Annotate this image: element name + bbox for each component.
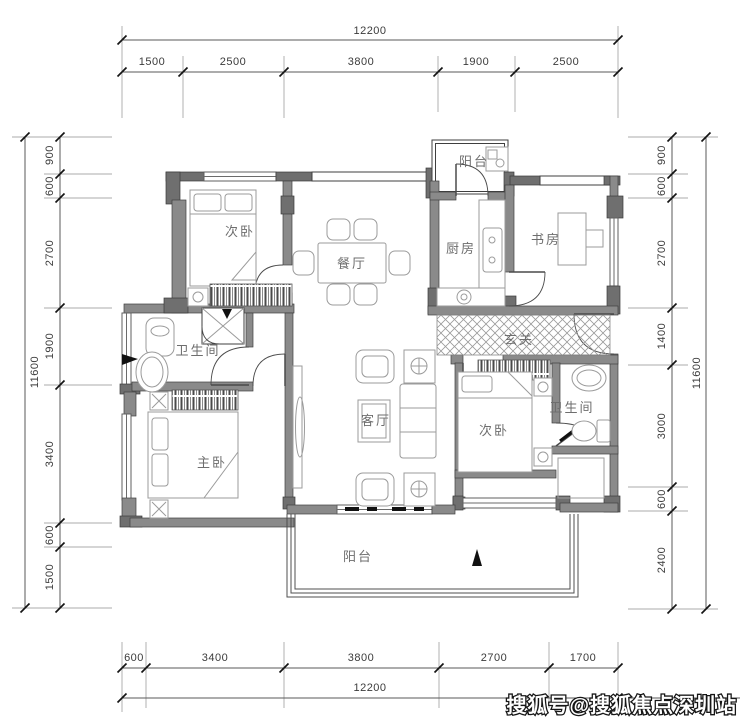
room-label-kitchen: 厨房 <box>446 241 476 256</box>
dim-right-seg-4: 3000 <box>656 413 668 439</box>
dim-top-seg-1: 2500 <box>220 56 246 68</box>
room-label-bedroom-top-left: 次卧 <box>225 224 255 239</box>
bath-left-fixtures <box>136 318 174 392</box>
study-chair <box>586 230 603 247</box>
dim-bottom-seg-1: 3400 <box>202 652 228 664</box>
dim-right-seg-6: 2400 <box>656 547 668 573</box>
armchair <box>356 350 394 383</box>
nightstand <box>534 378 552 396</box>
nightstand <box>534 448 552 466</box>
dim-left-seg-2: 2700 <box>44 240 56 266</box>
dim-top-seg-3: 1900 <box>463 56 489 68</box>
dim-right-seg-1: 600 <box>656 176 668 196</box>
dim-bottom-seg-3: 2700 <box>481 652 507 664</box>
balcony-rail <box>287 514 578 597</box>
dim-right-seg-0: 900 <box>656 145 668 165</box>
dim-top-seg-2: 3800 <box>348 56 374 68</box>
dimension-left: 11600 900 600 2700 1900 3400 600 1500 <box>21 133 65 613</box>
floorplan-page: 12200 1500 2500 3800 1900 2500 11600 900… <box>0 0 740 719</box>
dim-bottom-seg-0: 600 <box>124 652 144 664</box>
dim-left-seg-6: 1500 <box>44 564 56 590</box>
dim-left-seg-0: 900 <box>44 145 56 165</box>
dim-left-seg-5: 600 <box>44 525 56 545</box>
dim-top-seg-0: 1500 <box>139 56 165 68</box>
shower <box>202 308 244 344</box>
dim-bottom-seg-2: 3800 <box>348 652 374 664</box>
dim-bottom-seg-4: 1700 <box>570 652 596 664</box>
dim-bottom-total: 12200 <box>353 682 386 694</box>
dim-left-seg-3: 1900 <box>44 333 56 359</box>
armchair <box>356 473 394 506</box>
dim-left-seg-4: 3400 <box>44 441 56 467</box>
room-label-balcony-top: 阳台 <box>459 154 489 169</box>
tv-cabinet <box>293 366 305 488</box>
room-label-entry: 玄关 <box>504 332 534 347</box>
room-label-living: 客厅 <box>361 413 391 428</box>
dim-left-seg-1: 600 <box>44 176 56 196</box>
room-label-master-bedroom: 主卧 <box>197 455 227 470</box>
dim-right-seg-5: 600 <box>656 489 668 509</box>
dim-top-total: 12200 <box>353 25 386 37</box>
dim-right-seg-3: 1400 <box>656 323 668 349</box>
side-table <box>404 350 435 383</box>
dim-right-seg-2: 2700 <box>656 240 668 266</box>
bed-right <box>458 372 532 472</box>
dim-right-total: 11600 <box>691 357 703 389</box>
wardrobe-top-left <box>210 284 292 306</box>
nightstand <box>188 288 208 306</box>
room-label-bathroom-right: 卫生间 <box>549 400 594 415</box>
side-table <box>404 473 435 506</box>
room-label-balcony-bottom: 阳台 <box>343 549 373 564</box>
dimension-top: 12200 1500 2500 3800 1900 2500 <box>118 25 623 77</box>
room-label-dining: 餐厅 <box>337 256 367 271</box>
room-label-bathroom-left: 卫生间 <box>175 343 220 358</box>
sofa <box>400 384 436 458</box>
dim-top-seg-4: 2500 <box>553 56 579 68</box>
watermark-text: 搜狐号@搜狐焦点深圳站 <box>506 693 737 717</box>
dim-left-total: 11600 <box>29 356 41 388</box>
wardrobe-master <box>172 390 238 410</box>
room-label-study: 书房 <box>531 232 561 247</box>
dimension-right: 900 600 2700 1400 3000 600 2400 11600 <box>656 133 711 614</box>
utility-nook <box>558 458 604 498</box>
room-label-bedroom-right: 次卧 <box>479 423 509 438</box>
washer <box>486 147 508 171</box>
floorplan-drawing: 12200 1500 2500 3800 1900 2500 11600 900… <box>0 0 740 719</box>
study-desk <box>558 213 586 265</box>
